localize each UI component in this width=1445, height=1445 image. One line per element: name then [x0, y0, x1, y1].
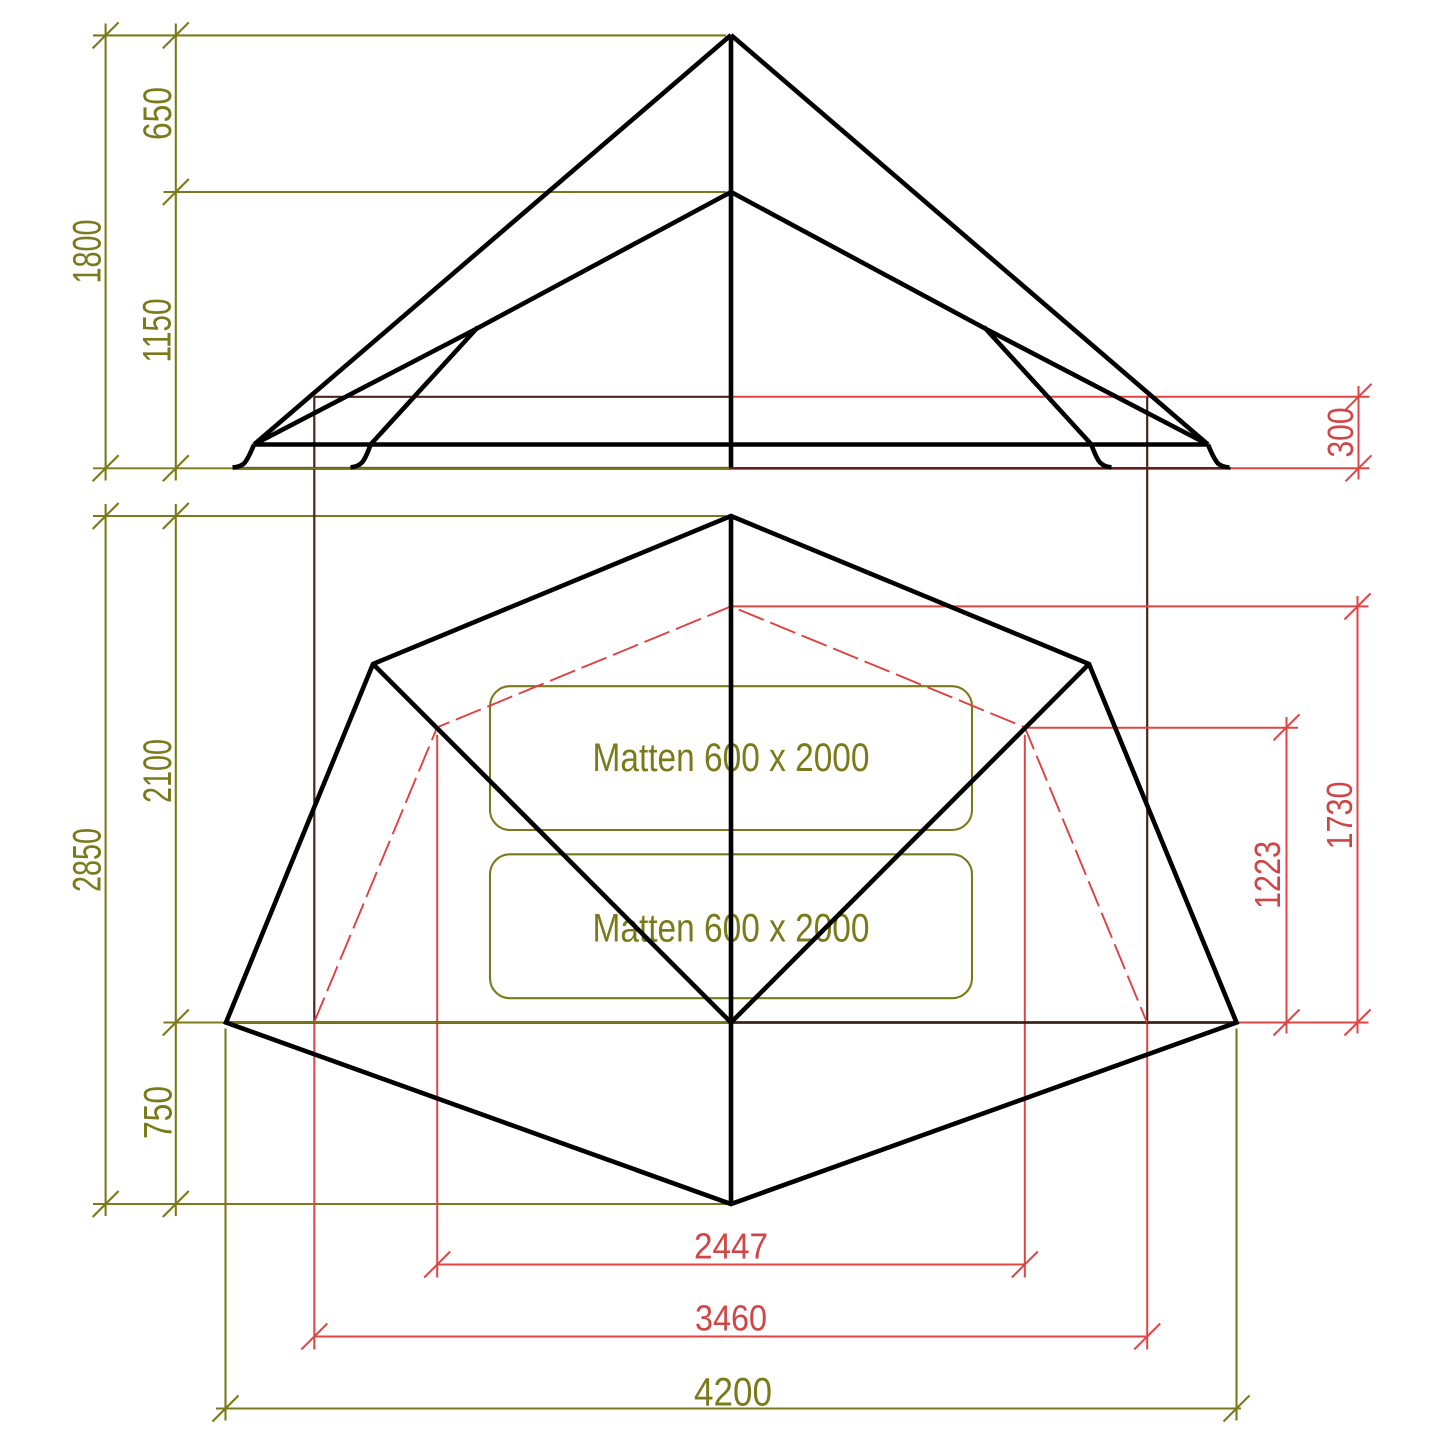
svg-text:2850: 2850: [66, 828, 110, 892]
svg-text:750: 750: [137, 1086, 181, 1139]
svg-text:1150: 1150: [136, 299, 180, 363]
svg-text:1800: 1800: [66, 220, 110, 284]
svg-text:1223: 1223: [1247, 841, 1288, 909]
svg-text:300: 300: [1320, 408, 1361, 458]
svg-text:1730: 1730: [1319, 782, 1360, 850]
svg-text:3460: 3460: [695, 1298, 767, 1339]
svg-text:650: 650: [136, 87, 180, 140]
svg-text:4200: 4200: [694, 1371, 772, 1415]
svg-text:2100: 2100: [136, 739, 180, 803]
svg-text:2447: 2447: [694, 1226, 768, 1267]
